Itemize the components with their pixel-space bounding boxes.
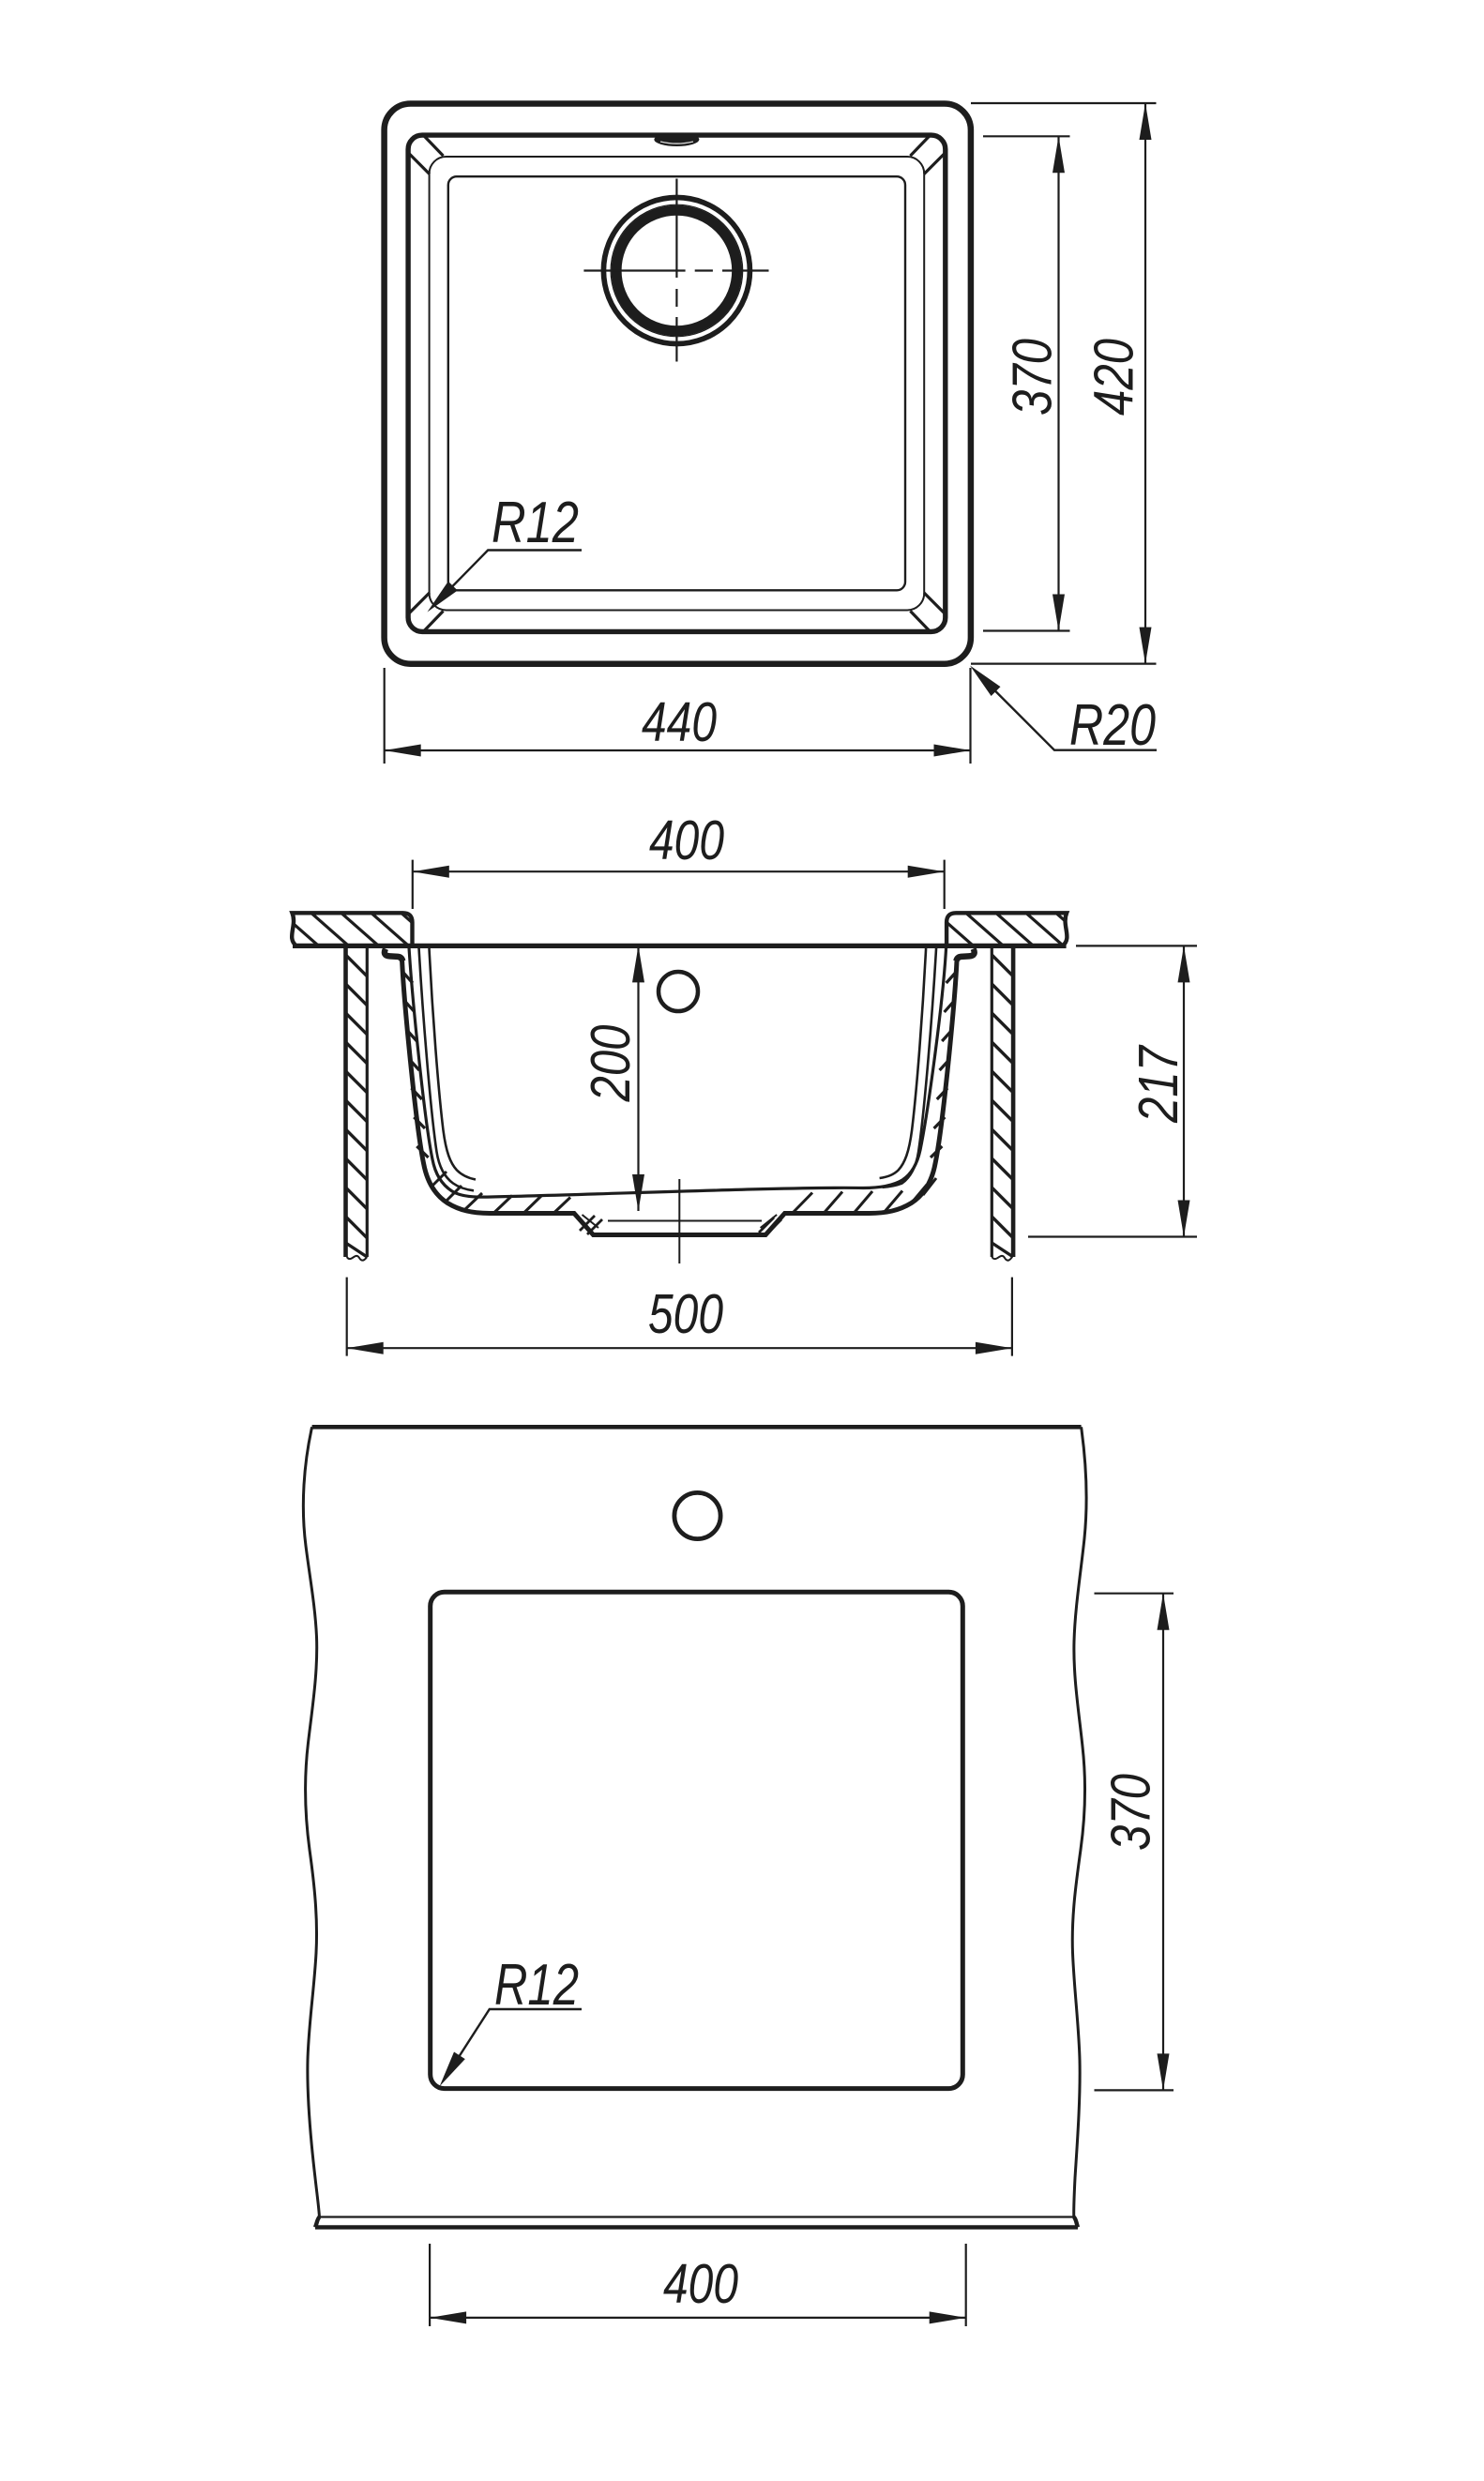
svg-text:420: 420 [1083, 339, 1145, 416]
svg-text:500: 500 [648, 1283, 723, 1345]
svg-text:217: 217 [1128, 1044, 1189, 1124]
svg-text:370: 370 [1002, 339, 1064, 416]
svg-text:400: 400 [663, 2253, 738, 2315]
svg-text:R20: R20 [1069, 693, 1156, 758]
svg-text:440: 440 [642, 691, 717, 753]
svg-text:200: 200 [580, 1024, 642, 1102]
svg-text:R12: R12 [492, 491, 579, 555]
svg-text:370: 370 [1100, 1774, 1162, 1851]
svg-text:400: 400 [649, 809, 724, 871]
svg-text:R12: R12 [494, 1953, 579, 2018]
